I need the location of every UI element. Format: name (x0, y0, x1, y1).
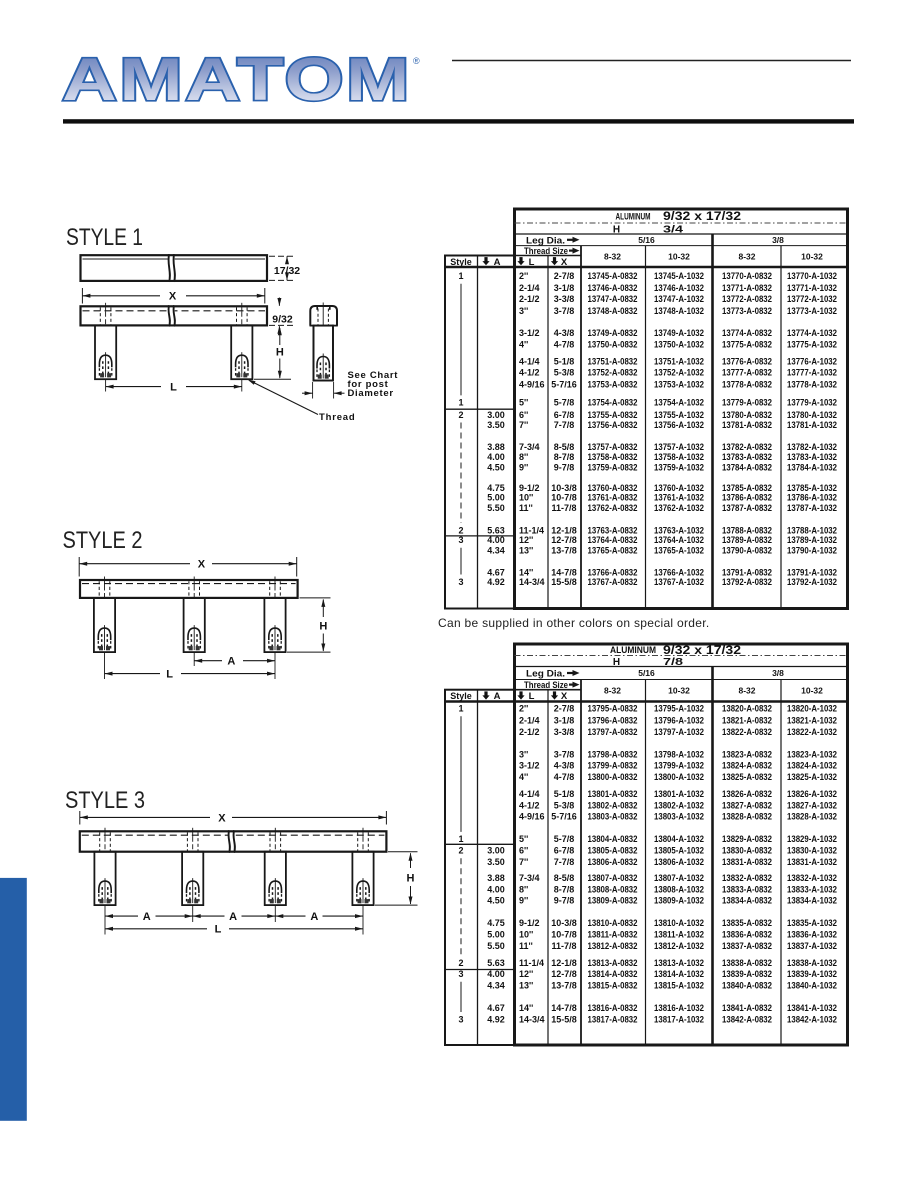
svg-text:13811-A-1032: 13811-A-1032 (654, 930, 704, 940)
svg-text:8-7/8: 8-7/8 (554, 452, 575, 462)
svg-text:13787-A-1032: 13787-A-1032 (787, 503, 837, 513)
svg-text:13827-A-1032: 13827-A-1032 (787, 800, 837, 810)
svg-text:5-1/8: 5-1/8 (554, 789, 575, 799)
svg-text:5-7/8: 5-7/8 (554, 834, 575, 844)
svg-text:13841-A-0832: 13841-A-0832 (722, 1003, 772, 1013)
svg-text:13761-A-1032: 13761-A-1032 (654, 493, 704, 503)
svg-text:3/4: 3/4 (663, 224, 683, 236)
svg-text:13805-A-0832: 13805-A-0832 (588, 846, 638, 856)
svg-text:13770-A-1032: 13770-A-1032 (787, 271, 837, 281)
svg-text:9/32: 9/32 (272, 314, 293, 326)
svg-text:13767-A-1032: 13767-A-1032 (654, 577, 704, 587)
svg-text:13773-A-1032: 13773-A-1032 (787, 306, 837, 316)
svg-text:13764-A-1032: 13764-A-1032 (654, 535, 704, 545)
svg-text:8-5/8: 8-5/8 (554, 442, 575, 452)
svg-text:13747-A-0832: 13747-A-0832 (588, 294, 638, 304)
svg-text:13772-A-0832: 13772-A-0832 (722, 294, 772, 304)
svg-text:13775-A-0832: 13775-A-0832 (722, 339, 772, 349)
svg-text:13826-A-0832: 13826-A-0832 (722, 789, 772, 799)
svg-text:4.00: 4.00 (487, 452, 505, 462)
svg-text:X: X (561, 257, 568, 268)
svg-text:5.63: 5.63 (487, 525, 505, 535)
svg-text:3/8: 3/8 (772, 668, 784, 678)
svg-text:10-7/8: 10-7/8 (551, 493, 577, 503)
svg-text:13802-A-0832: 13802-A-0832 (588, 800, 638, 810)
svg-text:13771-A-1032: 13771-A-1032 (787, 283, 837, 293)
svg-text:H: H (613, 224, 620, 235)
svg-text:4.67: 4.67 (487, 1003, 505, 1013)
svg-text:3.00: 3.00 (487, 410, 505, 420)
svg-text:12'': 12'' (519, 969, 533, 979)
svg-text:13789-A-0832: 13789-A-0832 (722, 535, 772, 545)
svg-text:4.50: 4.50 (487, 896, 505, 906)
svg-text:13834-A-1032: 13834-A-1032 (787, 896, 837, 906)
svg-text:13787-A-0832: 13787-A-0832 (722, 503, 772, 513)
svg-text:13800-A-0832: 13800-A-0832 (588, 772, 638, 782)
svg-text:13798-A-0832: 13798-A-0832 (588, 749, 638, 759)
svg-text:5.63: 5.63 (487, 958, 505, 968)
svg-text:12-1/8: 12-1/8 (551, 958, 577, 968)
svg-text:4-3/8: 4-3/8 (554, 328, 575, 338)
svg-text:3'': 3'' (519, 306, 528, 316)
svg-text:ALUMINUM: ALUMINUM (616, 212, 651, 222)
svg-text:13800-A-1032: 13800-A-1032 (654, 772, 704, 782)
svg-text:13757-A-0832: 13757-A-0832 (588, 442, 638, 452)
svg-text:13815-A-0832: 13815-A-0832 (588, 980, 638, 990)
svg-text:13825-A-1032: 13825-A-1032 (787, 772, 837, 782)
svg-text:13771-A-0832: 13771-A-0832 (722, 283, 772, 293)
svg-text:9-7/8: 9-7/8 (554, 462, 575, 472)
svg-text:4.92: 4.92 (487, 1014, 505, 1024)
svg-text:10-32: 10-32 (801, 686, 823, 696)
svg-text:13750-A-0832: 13750-A-0832 (588, 339, 638, 349)
svg-text:13824-A-0832: 13824-A-0832 (722, 761, 772, 771)
svg-text:8-32: 8-32 (738, 252, 755, 262)
svg-text:13830-A-1032: 13830-A-1032 (787, 846, 837, 856)
svg-text:13781-A-0832: 13781-A-0832 (722, 420, 772, 430)
svg-text:8-7/8: 8-7/8 (554, 884, 575, 894)
svg-text:13754-A-0832: 13754-A-0832 (588, 398, 638, 408)
svg-text:9/32 x 17/32: 9/32 x 17/32 (663, 211, 741, 223)
svg-text:Style: Style (450, 257, 472, 267)
svg-text:8-32: 8-32 (604, 686, 621, 696)
svg-text:3'': 3'' (519, 749, 528, 759)
svg-text:13832-A-1032: 13832-A-1032 (787, 873, 837, 883)
svg-text:4.00: 4.00 (487, 969, 505, 979)
svg-text:13749-A-0832: 13749-A-0832 (588, 328, 638, 338)
svg-text:5-3/8: 5-3/8 (554, 800, 575, 810)
svg-text:AMATOM: AMATOM (62, 46, 412, 113)
svg-text:®: ® (413, 56, 420, 66)
svg-text:2: 2 (458, 410, 463, 420)
svg-text:4-7/8: 4-7/8 (554, 339, 575, 349)
svg-text:14-3/4: 14-3/4 (519, 577, 545, 587)
svg-text:13754-A-1032: 13754-A-1032 (654, 398, 704, 408)
svg-text:3.50: 3.50 (487, 420, 505, 430)
svg-text:15-5/8: 15-5/8 (551, 1014, 577, 1024)
svg-text:13802-A-1032: 13802-A-1032 (654, 800, 704, 810)
svg-text:10-3/8: 10-3/8 (551, 483, 577, 493)
svg-text:1: 1 (458, 704, 463, 714)
svg-text:13762-A-1032: 13762-A-1032 (654, 503, 704, 513)
svg-text:3-3/8: 3-3/8 (554, 294, 575, 304)
svg-text:13790-A-0832: 13790-A-0832 (722, 546, 772, 556)
svg-text:11-7/8: 11-7/8 (551, 503, 576, 513)
svg-text:2-1/2: 2-1/2 (519, 727, 540, 737)
svg-text:13806-A-1032: 13806-A-1032 (654, 857, 704, 867)
svg-text:10'': 10'' (519, 493, 533, 503)
svg-text:X: X (561, 691, 568, 702)
svg-text:2: 2 (458, 525, 463, 535)
svg-text:Thread Size: Thread Size (524, 680, 568, 690)
svg-text:13745-A-1032: 13745-A-1032 (654, 271, 704, 281)
svg-text:Style: Style (450, 691, 472, 701)
svg-text:10-32: 10-32 (668, 686, 690, 696)
svg-text:3: 3 (458, 577, 463, 587)
svg-text:4-1/4: 4-1/4 (519, 789, 540, 799)
svg-text:13824-A-1032: 13824-A-1032 (787, 761, 837, 771)
svg-text:13842-A-1032: 13842-A-1032 (787, 1014, 837, 1024)
svg-text:5'': 5'' (519, 834, 528, 844)
svg-text:13772-A-1032: 13772-A-1032 (787, 294, 837, 304)
svg-text:13801-A-1032: 13801-A-1032 (654, 789, 704, 799)
svg-text:13764-A-0832: 13764-A-0832 (588, 535, 638, 545)
svg-text:13762-A-0832: 13762-A-0832 (588, 503, 638, 513)
svg-text:7-7/8: 7-7/8 (554, 857, 575, 867)
svg-text:13837-A-1032: 13837-A-1032 (787, 941, 837, 951)
svg-text:13747-A-1032: 13747-A-1032 (654, 294, 704, 304)
svg-text:13763-A-0832: 13763-A-0832 (588, 525, 638, 535)
svg-text:13765-A-1032: 13765-A-1032 (654, 546, 704, 556)
svg-text:13778-A-1032: 13778-A-1032 (787, 379, 837, 389)
svg-text:2-1/2: 2-1/2 (519, 294, 540, 304)
svg-text:A: A (143, 911, 151, 923)
svg-text:13779-A-0832: 13779-A-0832 (722, 398, 772, 408)
svg-text:13822-A-0832: 13822-A-0832 (722, 727, 772, 737)
svg-text:14'': 14'' (519, 1003, 533, 1013)
svg-text:13801-A-0832: 13801-A-0832 (588, 789, 638, 799)
svg-text:5-1/8: 5-1/8 (554, 356, 575, 366)
svg-text:13767-A-0832: 13767-A-0832 (588, 577, 638, 587)
svg-text:5-7/16: 5-7/16 (551, 379, 577, 389)
svg-text:13823-A-0832: 13823-A-0832 (722, 749, 772, 759)
svg-text:4.00: 4.00 (487, 535, 505, 545)
svg-text:5.00: 5.00 (487, 493, 505, 503)
svg-text:7-7/8: 7-7/8 (554, 420, 575, 430)
svg-text:5.50: 5.50 (487, 941, 505, 951)
svg-text:13756-A-0832: 13756-A-0832 (588, 420, 638, 430)
svg-text:13746-A-1032: 13746-A-1032 (654, 283, 704, 293)
svg-text:13789-A-1032: 13789-A-1032 (787, 535, 837, 545)
svg-text:13822-A-1032: 13822-A-1032 (787, 727, 837, 737)
svg-text:Leg Dia.: Leg Dia. (526, 235, 565, 246)
svg-text:2: 2 (458, 846, 463, 856)
svg-text:11-1/4: 11-1/4 (519, 958, 544, 968)
svg-text:11-7/8: 11-7/8 (551, 941, 576, 951)
svg-text:13808-A-0832: 13808-A-0832 (588, 884, 638, 894)
svg-text:4.34: 4.34 (487, 546, 505, 556)
svg-text:13816-A-0832: 13816-A-0832 (588, 1003, 638, 1013)
svg-text:13799-A-1032: 13799-A-1032 (654, 761, 704, 771)
svg-text:13842-A-0832: 13842-A-0832 (722, 1014, 772, 1024)
svg-text:13837-A-0832: 13837-A-0832 (722, 941, 772, 951)
svg-text:13826-A-1032: 13826-A-1032 (787, 789, 837, 799)
svg-text:13792-A-0832: 13792-A-0832 (722, 577, 772, 587)
svg-text:13813-A-0832: 13813-A-0832 (588, 958, 638, 968)
svg-text:13753-A-0832: 13753-A-0832 (588, 379, 638, 389)
svg-text:13836-A-1032: 13836-A-1032 (787, 930, 837, 940)
svg-text:13832-A-0832: 13832-A-0832 (722, 873, 772, 883)
svg-text:13'': 13'' (519, 546, 533, 556)
svg-text:13776-A-0832: 13776-A-0832 (722, 356, 772, 366)
svg-text:4-7/8: 4-7/8 (554, 772, 575, 782)
svg-text:7-3/4: 7-3/4 (519, 873, 540, 883)
svg-text:8'': 8'' (519, 884, 528, 894)
svg-text:4-3/8: 4-3/8 (554, 761, 575, 771)
svg-text:STYLE 2: STYLE 2 (63, 527, 143, 554)
svg-text:H: H (407, 872, 415, 884)
svg-text:13839-A-1032: 13839-A-1032 (787, 969, 837, 979)
svg-text:13829-A-1032: 13829-A-1032 (787, 834, 837, 844)
svg-text:13810-A-1032: 13810-A-1032 (654, 918, 704, 928)
svg-text:13825-A-0832: 13825-A-0832 (722, 772, 772, 782)
svg-text:13811-A-0832: 13811-A-0832 (588, 930, 638, 940)
svg-text:13773-A-0832: 13773-A-0832 (722, 306, 772, 316)
svg-text:13839-A-0832: 13839-A-0832 (722, 969, 772, 979)
svg-text:4-1/4: 4-1/4 (519, 356, 540, 366)
svg-text:4'': 4'' (519, 772, 528, 782)
svg-text:13803-A-0832: 13803-A-0832 (588, 812, 638, 822)
svg-text:13761-A-0832: 13761-A-0832 (588, 493, 638, 503)
svg-text:13817-A-1032: 13817-A-1032 (654, 1014, 704, 1024)
svg-text:13765-A-0832: 13765-A-0832 (588, 546, 638, 556)
svg-text:9-1/2: 9-1/2 (519, 483, 540, 493)
svg-text:13783-A-1032: 13783-A-1032 (787, 452, 837, 462)
svg-text:13806-A-0832: 13806-A-0832 (588, 857, 638, 867)
svg-text:2'': 2'' (519, 271, 528, 281)
svg-text:STYLE 3: STYLE 3 (65, 787, 145, 814)
svg-text:3.88: 3.88 (487, 442, 505, 452)
svg-text:L: L (170, 381, 177, 393)
svg-text:13748-A-1032: 13748-A-1032 (654, 306, 704, 316)
svg-text:4'': 4'' (519, 339, 528, 349)
svg-text:ALUMINUM: ALUMINUM (610, 645, 656, 655)
svg-text:13841-A-1032: 13841-A-1032 (787, 1003, 837, 1013)
svg-text:13758-A-1032: 13758-A-1032 (654, 452, 704, 462)
svg-text:13-7/8: 13-7/8 (551, 980, 577, 990)
svg-text:13833-A-1032: 13833-A-1032 (787, 884, 837, 894)
svg-text:13804-A-0832: 13804-A-0832 (588, 834, 638, 844)
svg-text:13831-A-1032: 13831-A-1032 (787, 857, 837, 867)
svg-text:12-7/8: 12-7/8 (551, 969, 577, 979)
svg-text:13753-A-1032: 13753-A-1032 (654, 379, 704, 389)
svg-text:3: 3 (458, 969, 463, 979)
svg-text:13835-A-0832: 13835-A-0832 (722, 918, 772, 928)
svg-text:7/8: 7/8 (663, 656, 683, 668)
svg-text:4.00: 4.00 (487, 884, 505, 894)
svg-text:L: L (166, 668, 173, 680)
svg-text:L: L (529, 257, 535, 268)
svg-text:13798-A-1032: 13798-A-1032 (654, 749, 704, 759)
svg-text:5.50: 5.50 (487, 503, 505, 513)
svg-text:12'': 12'' (519, 535, 533, 545)
svg-text:3: 3 (458, 1014, 463, 1024)
svg-text:13838-A-1032: 13838-A-1032 (787, 958, 837, 968)
svg-text:13752-A-0832: 13752-A-0832 (588, 368, 638, 378)
svg-text:7'': 7'' (519, 420, 528, 430)
svg-text:13777-A-0832: 13777-A-0832 (722, 368, 772, 378)
svg-text:13748-A-0832: 13748-A-0832 (588, 306, 638, 316)
svg-text:13774-A-0832: 13774-A-0832 (722, 328, 772, 338)
svg-text:10-3/8: 10-3/8 (551, 918, 577, 928)
svg-text:13755-A-0832: 13755-A-0832 (588, 410, 638, 420)
svg-text:7-3/4: 7-3/4 (519, 442, 540, 452)
svg-text:H: H (613, 657, 620, 668)
svg-text:13807-A-0832: 13807-A-0832 (588, 873, 638, 883)
svg-text:10-7/8: 10-7/8 (551, 930, 577, 940)
svg-text:13807-A-1032: 13807-A-1032 (654, 873, 704, 883)
svg-text:13835-A-1032: 13835-A-1032 (787, 918, 837, 928)
svg-text:13'': 13'' (519, 980, 533, 990)
svg-text:13827-A-0832: 13827-A-0832 (722, 800, 772, 810)
svg-text:2-1/4: 2-1/4 (519, 716, 540, 726)
svg-text:4-1/2: 4-1/2 (519, 368, 540, 378)
svg-text:13836-A-0832: 13836-A-0832 (722, 930, 772, 940)
svg-text:3-1/2: 3-1/2 (519, 328, 540, 338)
svg-text:13809-A-1032: 13809-A-1032 (654, 896, 704, 906)
svg-text:13759-A-1032: 13759-A-1032 (654, 462, 704, 472)
svg-text:10-32: 10-32 (801, 252, 823, 262)
svg-text:13784-A-0832: 13784-A-0832 (722, 462, 772, 472)
svg-text:9'': 9'' (519, 896, 528, 906)
svg-text:3.00: 3.00 (487, 846, 505, 856)
svg-text:13760-A-1032: 13760-A-1032 (654, 483, 704, 493)
svg-text:13786-A-1032: 13786-A-1032 (787, 493, 837, 503)
svg-text:X: X (218, 813, 226, 825)
svg-text:8-32: 8-32 (604, 252, 621, 262)
svg-text:14-3/4: 14-3/4 (519, 1014, 545, 1024)
svg-text:2-7/8: 2-7/8 (554, 271, 575, 281)
svg-text:A: A (310, 911, 318, 923)
svg-text:13756-A-1032: 13756-A-1032 (654, 420, 704, 430)
svg-text:17/32: 17/32 (274, 265, 300, 277)
svg-text:13788-A-1032: 13788-A-1032 (787, 525, 837, 535)
svg-text:13812-A-1032: 13812-A-1032 (654, 941, 704, 951)
svg-text:5.00: 5.00 (487, 930, 505, 940)
svg-text:A: A (494, 691, 501, 702)
svg-text:13808-A-1032: 13808-A-1032 (654, 884, 704, 894)
svg-text:13774-A-1032: 13774-A-1032 (787, 328, 837, 338)
svg-text:13778-A-0832: 13778-A-0832 (722, 379, 772, 389)
svg-text:6'': 6'' (519, 410, 528, 420)
svg-text:13797-A-1032: 13797-A-1032 (654, 727, 704, 737)
svg-text:8-32: 8-32 (738, 686, 755, 696)
svg-text:Leg Dia.: Leg Dia. (526, 669, 565, 680)
svg-text:13797-A-0832: 13797-A-0832 (588, 727, 638, 737)
svg-text:6-7/8: 6-7/8 (554, 846, 575, 856)
svg-text:2-7/8: 2-7/8 (554, 704, 575, 714)
svg-text:13810-A-0832: 13810-A-0832 (588, 918, 638, 928)
svg-text:13828-A-1032: 13828-A-1032 (787, 812, 837, 822)
svg-text:12-1/8: 12-1/8 (551, 525, 577, 535)
svg-text:3: 3 (458, 535, 463, 545)
svg-text:13795-A-1032: 13795-A-1032 (654, 704, 704, 714)
svg-text:13770-A-0832: 13770-A-0832 (722, 271, 772, 281)
svg-text:13776-A-1032: 13776-A-1032 (787, 356, 837, 366)
svg-text:3/8: 3/8 (772, 235, 784, 245)
svg-text:13816-A-1032: 13816-A-1032 (654, 1003, 704, 1013)
svg-text:L: L (215, 924, 222, 936)
svg-text:13803-A-1032: 13803-A-1032 (654, 812, 704, 822)
svg-text:13815-A-1032: 13815-A-1032 (654, 980, 704, 990)
svg-text:13820-A-1032: 13820-A-1032 (787, 704, 837, 714)
svg-text:13785-A-1032: 13785-A-1032 (787, 483, 837, 493)
svg-text:4-9/16: 4-9/16 (519, 379, 545, 389)
svg-text:11'': 11'' (519, 503, 533, 513)
svg-text:A: A (229, 911, 237, 923)
svg-text:13799-A-0832: 13799-A-0832 (588, 761, 638, 771)
svg-text:13780-A-1032: 13780-A-1032 (787, 410, 837, 420)
svg-text:4.75: 4.75 (487, 918, 505, 928)
svg-text:5-7/8: 5-7/8 (554, 398, 575, 408)
svg-text:13809-A-0832: 13809-A-0832 (588, 896, 638, 906)
svg-text:5'': 5'' (519, 398, 528, 408)
svg-text:Can be supplied in other color: Can be supplied in other colors on speci… (438, 616, 710, 630)
svg-text:13782-A-1032: 13782-A-1032 (787, 442, 837, 452)
svg-text:13777-A-1032: 13777-A-1032 (787, 368, 837, 378)
svg-text:13745-A-0832: 13745-A-0832 (588, 271, 638, 281)
svg-text:13804-A-1032: 13804-A-1032 (654, 834, 704, 844)
svg-text:13813-A-1032: 13813-A-1032 (654, 958, 704, 968)
svg-text:13755-A-1032: 13755-A-1032 (654, 410, 704, 420)
svg-text:13757-A-1032: 13757-A-1032 (654, 442, 704, 452)
svg-text:13782-A-0832: 13782-A-0832 (722, 442, 772, 452)
svg-text:13750-A-1032: 13750-A-1032 (654, 339, 704, 349)
svg-text:13783-A-0832: 13783-A-0832 (722, 452, 772, 462)
svg-text:2: 2 (458, 958, 463, 968)
svg-text:3-1/8: 3-1/8 (554, 283, 575, 293)
svg-text:4.34: 4.34 (487, 980, 505, 990)
svg-text:5/16: 5/16 (638, 235, 655, 245)
svg-text:13829-A-0832: 13829-A-0832 (722, 834, 772, 844)
svg-text:X: X (169, 291, 177, 303)
svg-text:13812-A-0832: 13812-A-0832 (588, 941, 638, 951)
svg-text:Diameter: Diameter (348, 388, 394, 399)
svg-text:STYLE 1: STYLE 1 (66, 224, 143, 251)
svg-text:3-1/2: 3-1/2 (519, 761, 540, 771)
svg-text:13838-A-0832: 13838-A-0832 (722, 958, 772, 968)
svg-text:13752-A-1032: 13752-A-1032 (654, 368, 704, 378)
svg-text:A: A (494, 257, 501, 268)
svg-text:9'': 9'' (519, 462, 528, 472)
svg-text:13814-A-0832: 13814-A-0832 (588, 969, 638, 979)
svg-text:10-32: 10-32 (668, 252, 690, 262)
svg-text:Thread: Thread (319, 412, 355, 423)
svg-text:3-3/8: 3-3/8 (554, 727, 575, 737)
svg-text:13796-A-0832: 13796-A-0832 (588, 716, 638, 726)
svg-text:4-1/2: 4-1/2 (519, 800, 540, 810)
svg-text:9-1/2: 9-1/2 (519, 918, 540, 928)
svg-text:2'': 2'' (519, 704, 528, 714)
svg-text:8-5/8: 8-5/8 (554, 873, 575, 883)
svg-text:13779-A-1032: 13779-A-1032 (787, 398, 837, 408)
svg-text:Thread Size: Thread Size (524, 246, 568, 256)
svg-text:13781-A-1032: 13781-A-1032 (787, 420, 837, 430)
svg-text:1: 1 (458, 271, 463, 281)
svg-text:13833-A-0832: 13833-A-0832 (722, 884, 772, 894)
svg-text:13751-A-1032: 13751-A-1032 (654, 356, 704, 366)
svg-text:13795-A-0832: 13795-A-0832 (588, 704, 638, 714)
